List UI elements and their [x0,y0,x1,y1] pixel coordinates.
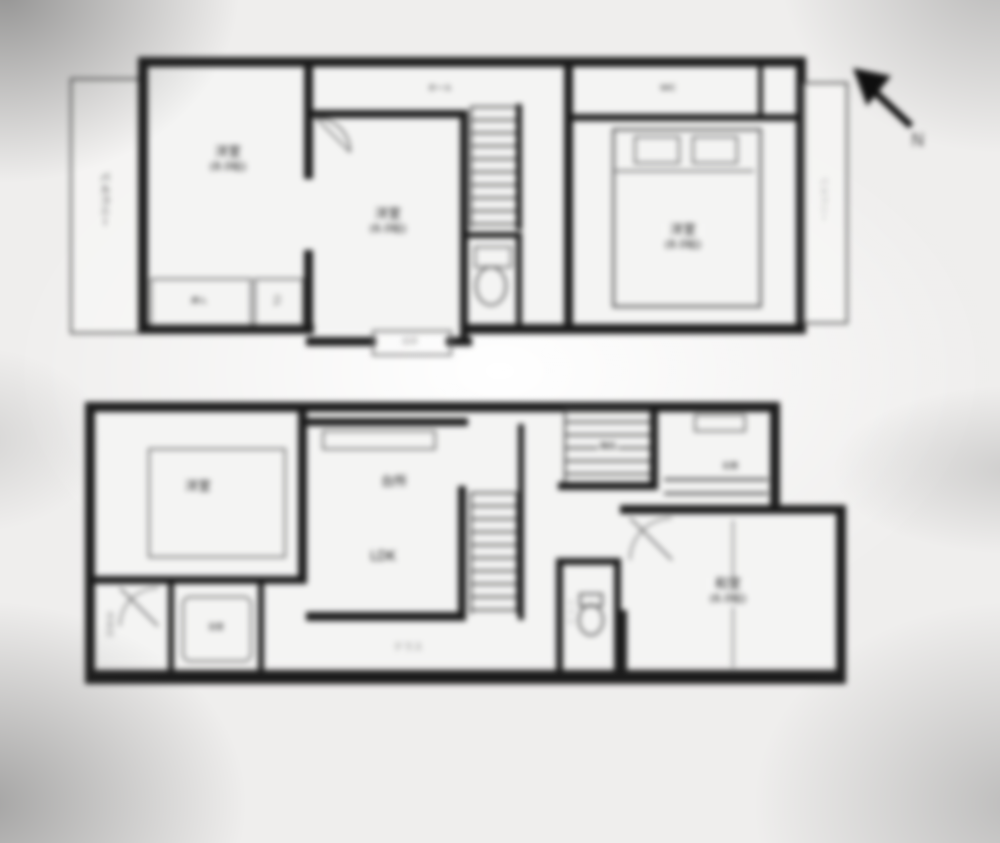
north-letter: N [911,130,924,151]
room-name: 洋室 [369,208,406,223]
wall [770,402,780,514]
room-size: (6.0帖) [709,593,746,606]
floor1-washroom-label: 洗面所 [105,612,114,639]
wall [306,337,376,346]
wall [458,486,466,620]
wall [564,57,573,334]
wall [306,110,466,118]
floor1-stairs-lower [470,492,518,614]
wall [298,402,307,584]
door-arc [118,586,164,632]
toilet-fixture [576,594,608,636]
wall [620,505,846,514]
wall [556,558,563,670]
floor1-terrace-label: テラス [393,642,423,654]
door-arc [628,516,678,566]
floor1-bedroom-label: 洋室 [181,480,215,497]
room-name: 和室 [709,578,746,593]
room-size: (8.0帖) [664,239,701,252]
room-name: 洋室 [209,146,246,161]
toilet-fixture [474,246,512,268]
room-name: 洋室 [664,224,701,239]
floor2-room1-label: 洋室 (8.0帖) [209,146,246,174]
floor1-ldk-label: LDK [370,551,396,566]
blurred-plan-photo: バルコニー 出窓 洋室 (8.0帖) 押入 CL 洋室 ( [0,0,1000,773]
entrance-window [694,414,746,432]
floor2-bay-window-label: 出窓 [402,336,418,345]
entrance-step-line [664,478,768,481]
north-arrow-icon: N [845,62,945,162]
floor2-room3-label: 洋室 (8.0帖) [660,223,705,253]
wall [304,250,313,334]
floor2-plan: バルコニー 出窓 洋室 (8.0帖) 押入 CL 洋室 ( [0,0,1000,380]
entrance-step-line [664,492,768,495]
wall [85,402,780,412]
floor2-wic-label: WIC [660,83,676,92]
floor1-toilet-label: トイレ [566,599,575,626]
floor1-kitchen-label: 台所 [381,476,407,491]
bed-pillow [634,136,680,164]
toilet-fixture [473,266,509,310]
floor2-closet-oshiire-label: 押入 [191,296,207,305]
wall [836,505,846,675]
wall [258,584,264,670]
room-size: (8.0帖) [209,161,246,174]
floor2-closet-cl-label: CL [272,295,281,307]
floor2-balcony-left-label: バルコニー [97,173,109,228]
wall [516,232,522,324]
wall [304,57,313,179]
floor2-room2-label: 洋室 (6.0帖) [369,208,406,236]
wall [460,232,520,238]
floor1-stairs-label: 階段 [598,441,618,450]
wall [306,418,468,426]
wall [516,104,522,230]
floor1-washitsu-label: 和室 (6.0帖) [705,577,750,607]
wall [618,610,627,672]
wall [460,110,468,344]
floor2-stairs [470,106,518,228]
bed-line [614,170,754,172]
wall [758,62,763,114]
floor1-plan: 洋室 洗面所 浴室 台所 LDK 階段 玄関 [0,380,1000,773]
floor2-balcony-right-label: バルコニー [819,178,828,223]
floor1-entrance-label: 玄関 [722,461,738,470]
wall [573,114,796,121]
wall [138,57,148,334]
door-arc [314,118,354,158]
room-size: (6.0帖) [369,223,406,236]
wall [558,482,658,490]
wall [466,324,570,334]
floor2-hall-label: ホール [428,83,452,92]
floor-plan-sheet: バルコニー 出窓 洋室 (8.0帖) 押入 CL 洋室 ( [0,0,1000,773]
wall [518,424,524,620]
wall [556,558,618,565]
wall [168,584,174,670]
wall [85,402,95,684]
wall [90,576,307,584]
bed-pillow [692,136,738,164]
wall [306,612,466,621]
rug [148,448,286,558]
wall [85,670,846,684]
wall [650,408,658,490]
kitchen-counter [322,430,436,450]
floor1-bath-label: 浴室 [206,622,226,631]
wall [564,324,806,334]
